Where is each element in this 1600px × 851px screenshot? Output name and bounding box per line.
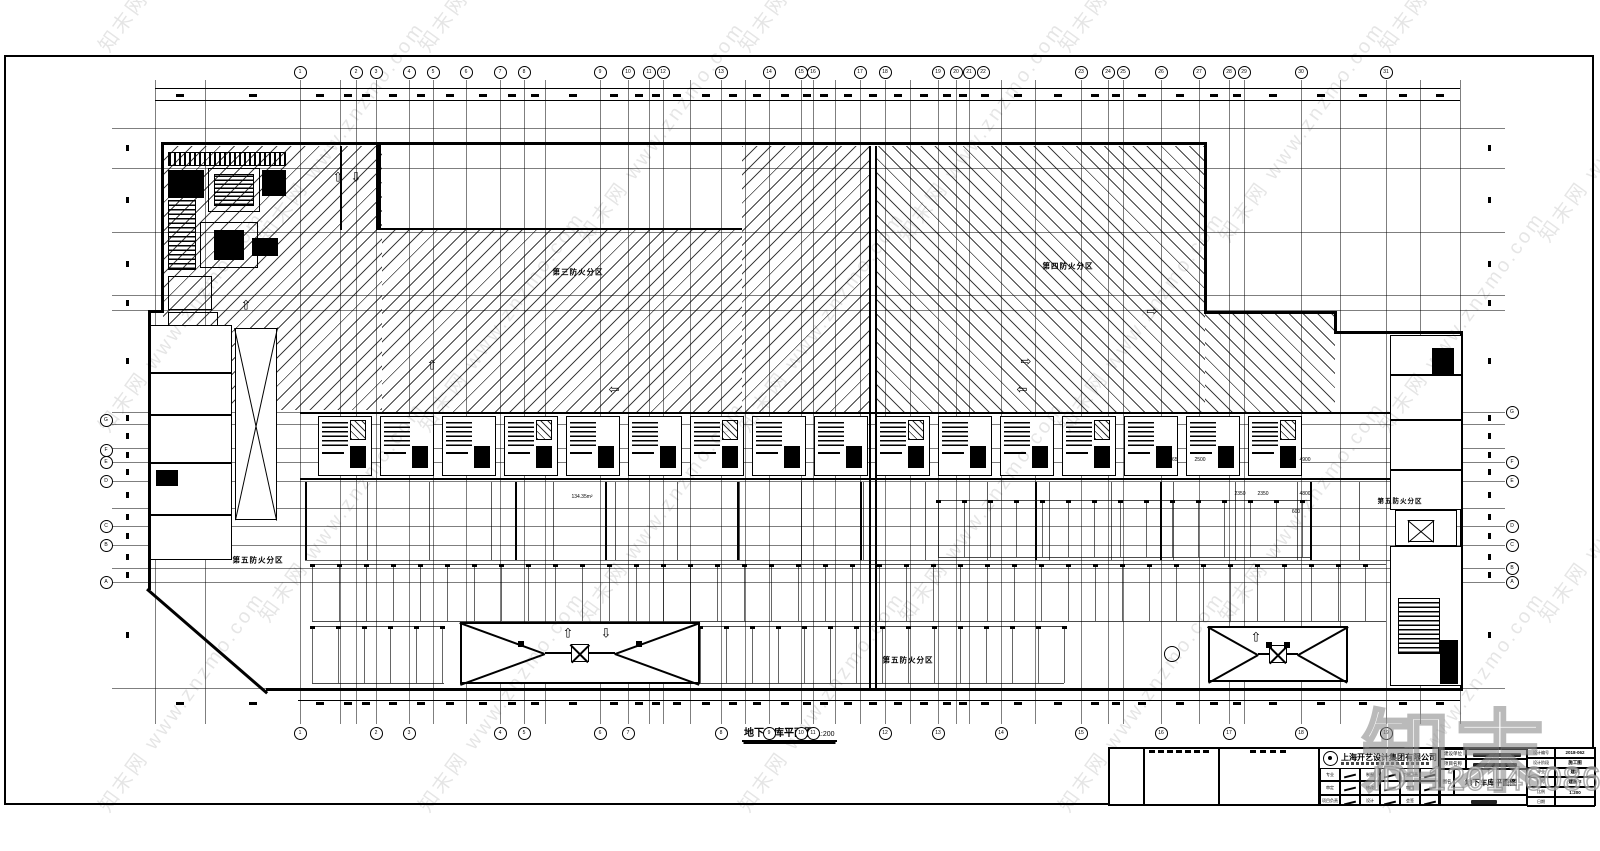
- dim-text-mark: [1210, 94, 1218, 97]
- stall-tick: [802, 626, 807, 629]
- partition: [863, 482, 864, 560]
- stall-tick: [1062, 626, 1067, 629]
- stall-tick: [362, 626, 367, 629]
- sign-grid-label: 设计: [1360, 795, 1380, 805]
- stair-symbol: [570, 420, 596, 446]
- stall-divider: [798, 564, 799, 621]
- axis-bubble: A: [1506, 576, 1519, 589]
- dim-text-mark: [1436, 94, 1444, 97]
- dim-label: 2350: [1257, 491, 1268, 497]
- drawing-name-label: 图名: [1440, 769, 1454, 795]
- dim-text-mark: [652, 94, 660, 97]
- dim-line-bottom: [298, 700, 1460, 701]
- dim-text-mark: [1233, 702, 1241, 705]
- court-mark: [1266, 642, 1272, 648]
- dim-text-mark: [1317, 94, 1325, 97]
- dim-text-mark: [126, 533, 129, 539]
- tb-field-value: 1:200: [1555, 787, 1595, 797]
- stall-tick: [750, 626, 755, 629]
- dim-text-mark: [508, 702, 516, 705]
- stall-divider: [717, 564, 718, 621]
- dim-text-mark: [417, 94, 425, 97]
- dim-text-mark: [920, 702, 928, 705]
- stall-tick: [1309, 564, 1314, 567]
- partition: [1111, 482, 1112, 560]
- stall-tick: [1066, 564, 1071, 567]
- dim-text-mark: [1488, 358, 1491, 364]
- stair-symbol: [1004, 420, 1030, 446]
- wall: [1204, 311, 1337, 314]
- dim-text-mark: [479, 702, 487, 705]
- stall-tick: [1222, 500, 1227, 503]
- axis-bubble: 4: [403, 66, 416, 79]
- dim-text-mark: [126, 261, 129, 267]
- stall-divider: [960, 626, 961, 683]
- stair-symbol: [508, 420, 534, 446]
- dim-text-mark: [508, 94, 516, 97]
- dim-text-mark: [1359, 702, 1367, 705]
- axis-bubble: 18: [1295, 727, 1308, 740]
- stall-tick: [1248, 500, 1253, 503]
- dim-text-mark: [1488, 300, 1491, 306]
- axis-bubble: 16: [1155, 727, 1168, 740]
- stall-tick: [985, 564, 990, 567]
- stall-tick: [1039, 564, 1044, 567]
- stall-divider: [447, 564, 448, 621]
- room-block: [1432, 348, 1454, 374]
- axis-bubble: 10: [622, 66, 635, 79]
- sign-grid-signature: [1420, 781, 1439, 794]
- ramp-arrow-icon: ⇧: [333, 171, 344, 186]
- stair-symbol: [322, 420, 348, 446]
- stall-divider: [416, 626, 417, 683]
- dim-text-mark: [1359, 94, 1367, 97]
- axis-bubble: 29: [1238, 66, 1251, 79]
- stall-tick: [526, 564, 531, 567]
- partition-thick: [737, 482, 739, 560]
- dim-text-mark: [781, 94, 789, 97]
- stair-symbol: [1190, 420, 1216, 446]
- dim-text-mark: [943, 94, 951, 97]
- stall-tick: [1170, 500, 1175, 503]
- partition: [1049, 482, 1050, 560]
- dim-label: 1765: [1166, 457, 1177, 463]
- tb-field-value: 施工图: [1555, 758, 1595, 768]
- axis-bubble: 19: [932, 66, 945, 79]
- stall-divider: [1338, 564, 1339, 621]
- stall-tick: [742, 564, 747, 567]
- stall-tick: [1201, 564, 1206, 567]
- wall: [148, 310, 164, 313]
- dim-text-mark: [344, 94, 352, 97]
- stall-divider: [990, 500, 991, 557]
- shaft-block: [722, 446, 738, 468]
- stall-tick: [391, 564, 396, 567]
- site-boundary: [146, 588, 268, 694]
- dim-text-mark: [126, 632, 129, 638]
- dim-text-mark: [569, 94, 577, 97]
- titleblock-info-section: 建设单位 项目名称 图名 地下车库平面图: [1439, 748, 1527, 805]
- stall-divider: [804, 626, 805, 683]
- ramp-arrow-icon: ⇧: [563, 627, 574, 642]
- axis-bubble: D: [100, 475, 113, 488]
- info-value-1: [1466, 749, 1527, 759]
- stall-divider: [700, 626, 701, 683]
- dim-label: 2350: [1234, 491, 1245, 497]
- stall-divider: [960, 564, 961, 621]
- stall-tick: [310, 626, 315, 629]
- dim-text-mark: [1054, 94, 1062, 97]
- dim-text-mark: [981, 702, 989, 705]
- axis-bubble: 14: [995, 727, 1008, 740]
- stall-divider: [1224, 500, 1225, 557]
- tb-field-value: 2018-062: [1555, 748, 1595, 758]
- partition-thick: [1160, 482, 1162, 560]
- dim-text-mark: [729, 702, 737, 705]
- stair-symbol: [1128, 420, 1154, 446]
- ramp-arrow-icon: ⇨: [1147, 305, 1158, 320]
- stall-divider: [1120, 500, 1121, 557]
- dim-text-mark: [126, 554, 129, 560]
- stall-divider: [636, 564, 637, 621]
- stall-divider: [825, 564, 826, 621]
- stall-divider: [987, 564, 988, 621]
- partition: [1173, 482, 1174, 560]
- stall-divider: [1016, 500, 1017, 557]
- dim-text-mark: [362, 702, 370, 705]
- core-wall: [446, 452, 468, 454]
- dim-text-mark: [1112, 702, 1120, 705]
- zone-label-5c: 第五防火分区: [1378, 495, 1423, 505]
- axis-bubble: 8: [518, 66, 531, 79]
- stall-divider: [778, 626, 779, 683]
- stall-tick: [1014, 500, 1019, 503]
- dim-text-mark: [702, 702, 710, 705]
- stall-divider: [338, 626, 339, 683]
- core-wall: [942, 452, 964, 454]
- stall-divider: [312, 564, 313, 621]
- dim-label: 600: [1292, 509, 1300, 515]
- axis-bubble: 4: [494, 727, 507, 740]
- stair-symbol: [880, 420, 906, 446]
- dim-text-mark: [126, 492, 129, 498]
- stall-divider: [1365, 564, 1366, 621]
- stall-tick: [877, 564, 882, 567]
- cad-sheet: 1234567891011121314151617181920212223242…: [0, 0, 1600, 851]
- dim-text-mark: [1138, 94, 1146, 97]
- stall-tick: [440, 626, 445, 629]
- axis-bubble: 2: [350, 66, 363, 79]
- core-hatch: [908, 420, 924, 440]
- stall-tick: [1282, 564, 1287, 567]
- zone-label-4: 第四防火分区: [1043, 261, 1094, 272]
- stall-tick: [828, 626, 833, 629]
- core-hatch: [536, 420, 552, 440]
- shaft-block: [1218, 446, 1234, 468]
- core-wall: [694, 452, 716, 454]
- dim-text-mark: [803, 94, 811, 97]
- dim-text-mark: [894, 94, 902, 97]
- dim-text-mark: [126, 514, 129, 520]
- axis-bubble: 23: [1075, 66, 1088, 79]
- dim-text-mark: [389, 702, 397, 705]
- stair-symbol: [1252, 420, 1278, 446]
- tb-field-label: 图号: [1527, 777, 1555, 787]
- stall-tick: [1010, 626, 1015, 629]
- axis-bubble: 16: [807, 66, 820, 79]
- dim-line-top: [155, 100, 1460, 101]
- axis-bubble: 18: [879, 66, 892, 79]
- core-wall: [632, 452, 654, 454]
- dim-text-mark: [1269, 94, 1277, 97]
- dim-text-mark: [803, 702, 811, 705]
- dim-text-mark: [1488, 469, 1491, 475]
- plan-scale: 1:200: [817, 731, 835, 738]
- sign-grid-label: 会签: [1400, 795, 1420, 805]
- stall-tick: [388, 626, 393, 629]
- axis-bubble: D: [1506, 520, 1519, 533]
- grid-line-v: [1386, 80, 1387, 724]
- dim-text-mark: [126, 415, 129, 421]
- stall-row-bottom: [938, 557, 1312, 558]
- axis-bubble: 8: [715, 727, 728, 740]
- dim-text-mark: [176, 94, 184, 97]
- ramp-arrow-icon: ⇨: [1021, 355, 1032, 370]
- stair-symbol: [942, 420, 968, 446]
- core-hatch: [1094, 420, 1110, 440]
- dim-text-mark: [126, 300, 129, 306]
- tb-field-label: 设计编号: [1527, 748, 1555, 758]
- stall-tick: [661, 564, 666, 567]
- dim-text-mark: [729, 94, 737, 97]
- stall-divider: [474, 564, 475, 621]
- stall-divider: [1041, 564, 1042, 621]
- partition-thick: [605, 482, 607, 560]
- stall-divider: [938, 500, 939, 557]
- info-bottom: [1440, 795, 1527, 805]
- stair-symbol: [756, 420, 782, 446]
- axis-bubble: G: [1506, 406, 1519, 419]
- stall-row-bottom: [312, 683, 444, 684]
- dim-text-mark: [1054, 702, 1062, 705]
- dim-text-mark: [1091, 702, 1099, 705]
- axis-bubble: 12: [657, 66, 670, 79]
- stall-divider: [1095, 564, 1096, 621]
- axis-bubble: F: [100, 444, 113, 457]
- dim-text-mark: [1269, 702, 1277, 705]
- info-label-1: 建设单位: [1440, 749, 1466, 759]
- dim-text-mark: [869, 94, 877, 97]
- stall-row-top: [312, 626, 444, 627]
- titleblock-box-1: [1109, 748, 1144, 805]
- shaft-block: [1032, 446, 1048, 468]
- core-wall: [322, 452, 344, 454]
- dim-text-mark: [959, 94, 967, 97]
- dim-text-mark: [635, 94, 643, 97]
- stall-tick: [1093, 564, 1098, 567]
- axis-bubble: 15: [795, 66, 808, 79]
- stall-tick: [1120, 564, 1125, 567]
- ramp-arrow-icon: ⇩: [601, 627, 612, 642]
- stall-tick: [580, 564, 585, 567]
- corner-detail: [252, 238, 278, 256]
- stall-divider: [1146, 500, 1147, 557]
- shaft-block: [536, 446, 552, 468]
- sign-grid-label: 项目负责: [1320, 795, 1340, 805]
- titleblock-company-section: 上海开艺设计集团有限公司 专业制图专业负责审定修改审核项目负责设计会签: [1319, 748, 1439, 805]
- tb-field-label: 日期: [1527, 797, 1555, 807]
- dim-text-mark: [249, 94, 257, 97]
- core-wall: [384, 452, 406, 454]
- axis-bubble: B: [100, 539, 113, 552]
- partition: [429, 482, 430, 560]
- sign-grid-signature: [1420, 795, 1439, 805]
- axis-bubble: E: [100, 456, 113, 469]
- room-block: [1440, 640, 1458, 684]
- shaft-block: [1094, 446, 1110, 468]
- ramp-arrow-icon: ⇩: [351, 171, 362, 186]
- wall: [300, 412, 1390, 414]
- sign-grid: 专业制图专业负责审定修改审核项目负责设计会签: [1320, 768, 1439, 805]
- axis-bubble: 3: [403, 727, 416, 740]
- core-hatch: [722, 420, 738, 440]
- stall-tick: [364, 564, 369, 567]
- stall-tick: [1040, 500, 1045, 503]
- axis-bubble: 5: [518, 727, 531, 740]
- stall-divider: [663, 564, 664, 621]
- stall-tick: [1255, 564, 1260, 567]
- corner-detail: [214, 174, 254, 206]
- dim-text-mark: [126, 145, 129, 151]
- dim-text-mark: [753, 702, 761, 705]
- stall-tick: [414, 626, 419, 629]
- stall-tick: [776, 626, 781, 629]
- titleblock-box-2: [1144, 748, 1219, 805]
- dim-text-mark: [446, 702, 454, 705]
- stall-divider: [934, 626, 935, 683]
- corner-detail: [168, 152, 286, 166]
- title-block: 上海开艺设计集团有限公司 专业制图专业负责审定修改审核项目负责设计会签 建设单位…: [1108, 747, 1596, 806]
- wall: [266, 688, 1463, 691]
- drawing-name: 地下车库平面图: [1454, 769, 1527, 795]
- stall-row-bottom: [700, 683, 1064, 684]
- dim-text-mark: [610, 94, 618, 97]
- stall-tick: [1228, 564, 1233, 567]
- dim-text-mark: [1488, 572, 1491, 578]
- stall-divider: [1250, 500, 1251, 557]
- shaft-block: [350, 446, 366, 468]
- dim-text-mark: [652, 702, 660, 705]
- corner-detail: [168, 276, 212, 310]
- wall: [161, 142, 164, 312]
- dim-text-mark: [1488, 261, 1491, 267]
- stall-tick: [1300, 500, 1305, 503]
- dim-text-mark: [1488, 492, 1491, 498]
- ramp-arrow-icon: ⇦: [1017, 383, 1028, 398]
- stall-divider: [906, 564, 907, 621]
- stall-tick: [854, 626, 859, 629]
- axis-bubble: 7: [622, 727, 635, 740]
- stair-symbol: [694, 420, 720, 446]
- ramp-arrow-icon: ⇧: [427, 359, 438, 374]
- tb-field-value: 建施-2: [1555, 777, 1595, 787]
- core-wall: [1190, 452, 1212, 454]
- hatch-zone-3: [742, 146, 871, 412]
- stall-tick: [936, 500, 941, 503]
- dim-text-mark: [1317, 702, 1325, 705]
- tb-field-label: 专业: [1527, 768, 1555, 778]
- dim-text-mark: [753, 94, 761, 97]
- tb-field-value: [1555, 797, 1595, 807]
- stall-divider: [1042, 500, 1043, 557]
- stall-divider: [690, 564, 691, 621]
- stall-divider: [1257, 564, 1258, 621]
- stall-divider: [339, 564, 340, 621]
- dim-label: 2500: [1194, 457, 1205, 463]
- dim-text-mark: [673, 702, 681, 705]
- stall-divider: [1149, 564, 1150, 621]
- corner-detail: [168, 200, 196, 270]
- dim-text-mark: [1176, 702, 1184, 705]
- stall-divider: [390, 626, 391, 683]
- dim-text-mark: [126, 197, 129, 203]
- stall-tick: [906, 626, 911, 629]
- axis-bubble: 17: [854, 66, 867, 79]
- room-block: [156, 470, 178, 486]
- stall-tick: [1274, 500, 1279, 503]
- partition: [615, 482, 616, 560]
- partition: [677, 482, 678, 560]
- axis-bubble: 19: [1380, 727, 1393, 740]
- sign-grid-signature: [1380, 781, 1400, 794]
- zone-label-5a: 第五防火分区: [233, 555, 284, 566]
- dim-text-mark: [981, 94, 989, 97]
- stall-divider: [1038, 626, 1039, 683]
- corner-detail: [262, 170, 286, 196]
- axis-bubble: 11: [643, 66, 656, 79]
- sign-grid-signature: [1380, 768, 1400, 781]
- dim-text-mark: [531, 94, 539, 97]
- core-wall: [1252, 452, 1274, 454]
- dim-text-mark: [1112, 94, 1120, 97]
- partition-thick: [515, 482, 517, 560]
- partition: [925, 482, 926, 560]
- stall-tick: [337, 564, 342, 567]
- dim-text-mark: [531, 702, 539, 705]
- dim-text-mark: [126, 572, 129, 578]
- dim-text-mark: [344, 702, 352, 705]
- stall-divider: [1230, 564, 1231, 621]
- dim-text-mark: [1488, 415, 1491, 421]
- axis-bubble: 22: [977, 66, 990, 79]
- stall-divider: [312, 626, 313, 683]
- core-hatch: [350, 420, 366, 440]
- room: [1390, 420, 1462, 470]
- stall-tick: [850, 564, 855, 567]
- axis-bubble: 21: [963, 66, 976, 79]
- dim-text-mark: [1488, 197, 1491, 203]
- court-mark: [636, 641, 642, 647]
- grid-line-h: [112, 128, 1505, 129]
- wall: [376, 142, 381, 230]
- dim-label: 134.35m²: [571, 494, 592, 500]
- stall-divider: [933, 564, 934, 621]
- corner-detail: [214, 230, 244, 260]
- stall-divider: [528, 564, 529, 621]
- dim-text-mark: [943, 702, 951, 705]
- room: [150, 373, 232, 415]
- dim-text-mark: [920, 94, 928, 97]
